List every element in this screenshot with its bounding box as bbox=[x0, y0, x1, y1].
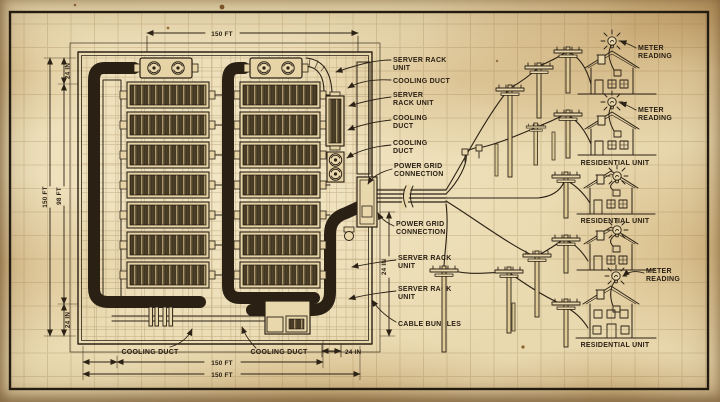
label-cooling-duct-bottom-left: COOLING DUCT bbox=[121, 349, 179, 356]
svg-text:150 FT: 150 FT bbox=[211, 372, 232, 379]
pole-stub bbox=[552, 132, 555, 160]
server-rack bbox=[234, 262, 330, 288]
label-residential-unit-3: RESIDENTIAL UNIT bbox=[581, 342, 650, 349]
svg-text:24 IN: 24 IN bbox=[65, 312, 72, 328]
svg-text:24 IN: 24 IN bbox=[65, 63, 72, 79]
wall-server-rack-unit bbox=[326, 92, 344, 150]
blueprint-page: 150 FT 150 FT 98 FT 24 IN 24 IN bbox=[0, 0, 720, 402]
valve-unit bbox=[344, 227, 354, 241]
blueprint-canvas: 150 FT 150 FT 98 FT 24 IN 24 IN bbox=[0, 0, 720, 402]
line-device bbox=[476, 145, 482, 151]
server-rack bbox=[234, 202, 330, 228]
svg-text:150 FT: 150 FT bbox=[211, 360, 232, 367]
server-rack bbox=[234, 142, 330, 168]
label-residential-unit-1: RESIDENTIAL UNIT bbox=[581, 160, 650, 167]
bottom-cooling-unit bbox=[265, 301, 310, 334]
server-rack bbox=[234, 82, 330, 108]
label-power-grid-a: POWER GRIDCONNECTION bbox=[394, 163, 444, 178]
svg-text:24 IN: 24 IN bbox=[345, 349, 361, 356]
server-rack bbox=[234, 112, 330, 138]
server-rack-column-right bbox=[234, 82, 330, 288]
svg-text:150 FT: 150 FT bbox=[211, 31, 232, 38]
cooling-fan-unit-left bbox=[134, 58, 198, 78]
server-rack bbox=[234, 172, 330, 198]
pole-stub bbox=[512, 303, 515, 331]
server-farm-building bbox=[70, 43, 380, 352]
svg-text:98 FT: 98 FT bbox=[56, 187, 63, 205]
label-cable-bundles: CABLE BUNDLES bbox=[398, 321, 461, 328]
pole-stub bbox=[495, 144, 498, 176]
label-cooling-duct-bottom-right: COOLING DUCT bbox=[250, 349, 308, 356]
label-residential-unit-2: RESIDENTIAL UNIT bbox=[581, 218, 650, 225]
label-cooling-duct-a: COOLING DUCT bbox=[393, 78, 451, 85]
label-power-grid-b: POWER GRIDCONNECTION bbox=[396, 221, 446, 236]
cooling-fan-unit-right bbox=[244, 58, 308, 78]
wall-fan-box bbox=[327, 152, 344, 182]
svg-text:150 FT: 150 FT bbox=[42, 186, 49, 207]
line-device bbox=[462, 149, 468, 155]
power-grid-panel bbox=[357, 177, 377, 227]
server-rack bbox=[234, 232, 330, 258]
